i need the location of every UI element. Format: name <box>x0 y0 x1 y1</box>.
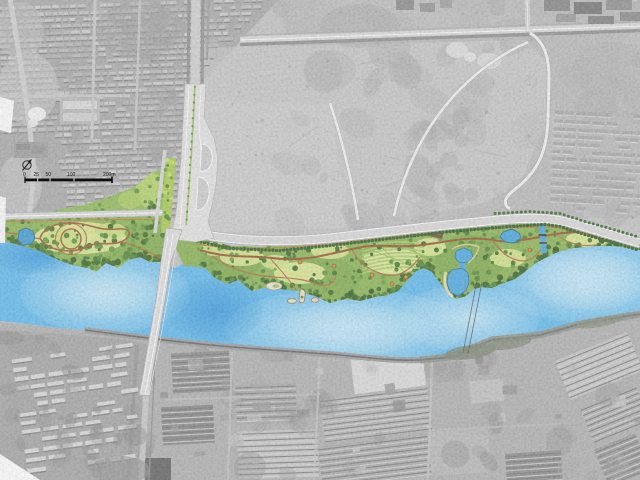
svg-text:50: 50 <box>46 172 52 178</box>
svg-text:25: 25 <box>34 172 40 178</box>
svg-text:100: 100 <box>67 172 76 178</box>
svg-text:200m: 200m <box>103 172 116 178</box>
